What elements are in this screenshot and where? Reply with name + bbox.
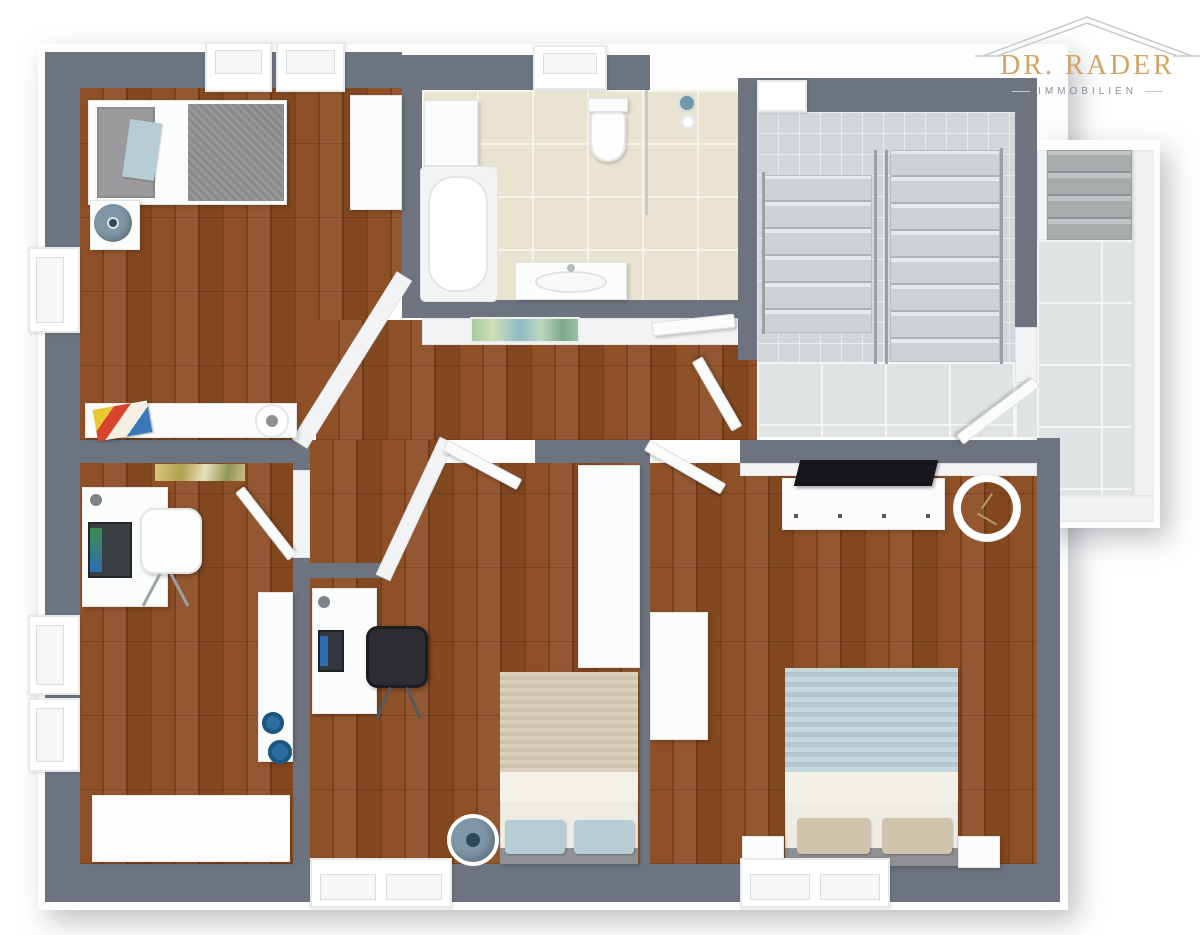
office-white-rug — [92, 795, 290, 862]
toilet-cistern — [588, 98, 628, 112]
right-bed-pillow-a — [797, 818, 870, 854]
wall-between-doors — [535, 440, 650, 463]
shower-head — [680, 96, 694, 110]
window-bedroom-top-b — [276, 42, 345, 92]
office-chair-black — [366, 626, 428, 688]
stair-railing-center-a — [874, 150, 877, 364]
decor-item — [266, 415, 278, 427]
wall-stairwell-right-cap — [1015, 327, 1037, 383]
wardrobe-bedroom-top-left — [350, 95, 402, 210]
office-storage-bench — [258, 592, 293, 762]
outdoor-steps — [1047, 150, 1132, 240]
bath-cabinet — [424, 100, 478, 166]
toilet — [590, 112, 626, 162]
office-door-frame — [293, 470, 310, 558]
office-chair-white — [140, 508, 202, 574]
stairwell-top-door — [757, 80, 807, 112]
wall-middle-right — [640, 463, 650, 864]
logo-dash-right — [1145, 91, 1163, 92]
wall-office-vert-a — [293, 463, 310, 470]
window-bedroom-top-a — [205, 42, 272, 92]
window-bathroom — [533, 45, 607, 90]
wardrobe-right — [650, 612, 708, 740]
stair-railing-left — [762, 172, 765, 334]
stair-railing-right — [1000, 148, 1003, 364]
wall-stairwell-left — [738, 78, 757, 360]
stair-railing-center-b — [885, 150, 888, 364]
office-laptop-screen — [90, 528, 102, 572]
bed-duvet — [188, 104, 284, 201]
toilet-paper-holder — [680, 114, 696, 130]
sink-basin — [535, 271, 607, 293]
middle-bed-pillow-a — [505, 820, 565, 854]
window-bedroom-middle-bottom — [310, 858, 452, 908]
parapet-right — [1132, 150, 1154, 522]
blue-bowl-b — [268, 740, 292, 764]
logo-roof-icon — [975, 10, 1200, 62]
middle-bed-pillow-b — [574, 820, 634, 854]
window-bedroom-right-bottom — [740, 858, 890, 908]
logo-subtitle-row: IMMOBILIEN — [975, 86, 1200, 97]
wall-nook-bottom — [310, 563, 383, 578]
wall-steps-side — [1037, 150, 1047, 240]
office-wall-art — [155, 464, 245, 481]
logo-subtitle: IMMOBILIEN — [1038, 86, 1137, 97]
nightstand-right — [958, 836, 1000, 868]
pouf-center — [466, 833, 480, 847]
dresser-handles — [794, 514, 934, 518]
wall-right — [1037, 438, 1060, 902]
wall-hallway-top — [402, 300, 757, 318]
right-bed-pillow-b — [882, 818, 952, 854]
right-bed-blanket — [785, 668, 958, 772]
wall-left — [45, 52, 80, 902]
logo: DR. RADER IMMOBILIEN — [975, 10, 1200, 97]
wall-bottom — [45, 864, 1060, 902]
wall-office-vert-b — [293, 558, 310, 864]
window-office-left-a — [28, 615, 80, 695]
blue-bowl-a — [262, 712, 284, 734]
middle-desk-lamp — [318, 596, 330, 608]
wall-clock — [961, 482, 1013, 534]
wall-stairwell-right — [1015, 78, 1037, 327]
hallway-wall-art — [472, 319, 578, 341]
logo-dash-left — [1012, 91, 1030, 92]
shower-glass — [645, 90, 648, 215]
stair-flight-right — [890, 150, 1000, 362]
middle-bed-blanket — [500, 672, 638, 772]
wall-office-top — [45, 440, 293, 463]
middle-bed-sheet — [500, 772, 638, 802]
tv — [794, 460, 938, 486]
table-lamp-top — [107, 217, 119, 229]
floor-plan: DR. RADER IMMOBILIEN — [0, 0, 1200, 935]
sink-faucet — [567, 264, 575, 272]
wardrobe-middle — [578, 465, 640, 668]
middle-laptop-screen — [320, 636, 328, 666]
right-bed-sheet — [785, 772, 958, 802]
window-bedroom-left — [28, 247, 80, 333]
bathtub-basin — [428, 176, 488, 292]
office-desk-lamp — [90, 494, 102, 506]
stair-flight-left — [764, 175, 872, 333]
window-office-left-b — [28, 698, 80, 772]
